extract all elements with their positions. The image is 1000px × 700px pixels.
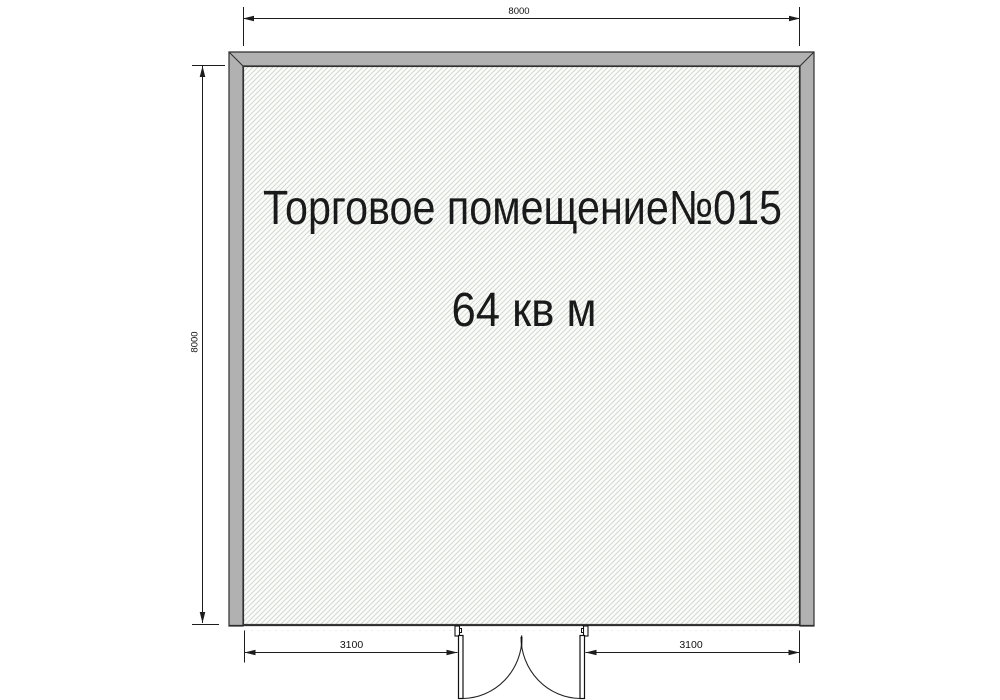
svg-text:8000: 8000	[508, 6, 529, 17]
svg-text:3100: 3100	[340, 639, 364, 651]
svg-text:8000: 8000	[190, 331, 201, 352]
svg-text:3100: 3100	[679, 639, 703, 651]
svg-text:64 кв м: 64 кв м	[452, 284, 597, 337]
svg-text:Торговое помещение№015: Торговое помещение№015	[263, 182, 782, 235]
